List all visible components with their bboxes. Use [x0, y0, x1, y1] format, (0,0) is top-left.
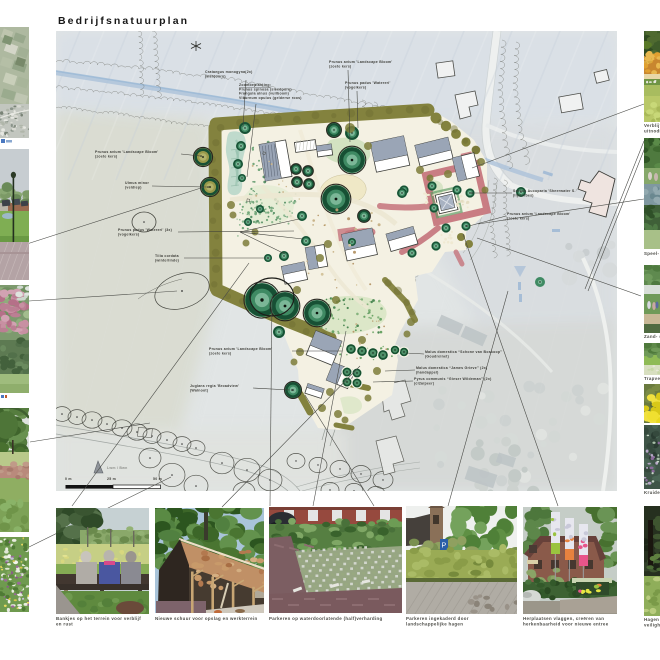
- svg-text:Herplaatsen vlaggen, creëren v: Herplaatsen vlaggen, creëren vanherkenba…: [523, 616, 609, 627]
- svg-text:0 m: 0 m: [65, 477, 72, 481]
- svg-text:Hagen voorveiligheid: Hagen voorveiligheid: [644, 617, 660, 628]
- svg-text:Zand- spelen: Zand- spelen: [644, 334, 660, 339]
- svg-text:Speel- en: Speel- en: [644, 251, 660, 256]
- svg-text:P: P: [442, 543, 447, 550]
- svg-text:Bedrijfsnatuurplan: Bedrijfsnatuurplan: [58, 15, 189, 27]
- svg-text:Verblijfsplekuitnodigend: Verblijfsplekuitnodigend: [644, 123, 660, 134]
- svg-text:Tilia cordata(winterlinde): Tilia cordata(winterlinde): [155, 254, 179, 262]
- svg-text:Nieuwe schuur voor opslag en w: Nieuwe schuur voor opslag en werkterrein: [155, 616, 258, 621]
- svg-text:25 m: 25 m: [107, 477, 116, 481]
- svg-text:Trapveldje: Trapveldje: [644, 376, 660, 381]
- svg-text:Kruidenrijk: Kruidenrijk: [644, 490, 660, 495]
- svg-text:Parkeren op waterdoorlatende (: Parkeren op waterdoorlatende (half)verha…: [269, 616, 383, 621]
- svg-text:Lwm / Bwn: Lwm / Bwn: [107, 466, 128, 470]
- svg-text:50 m: 50 m: [153, 477, 162, 481]
- svg-text:Parkeren ingekaderd doorlandsc: Parkeren ingekaderd doorlandschappelijke…: [406, 616, 469, 627]
